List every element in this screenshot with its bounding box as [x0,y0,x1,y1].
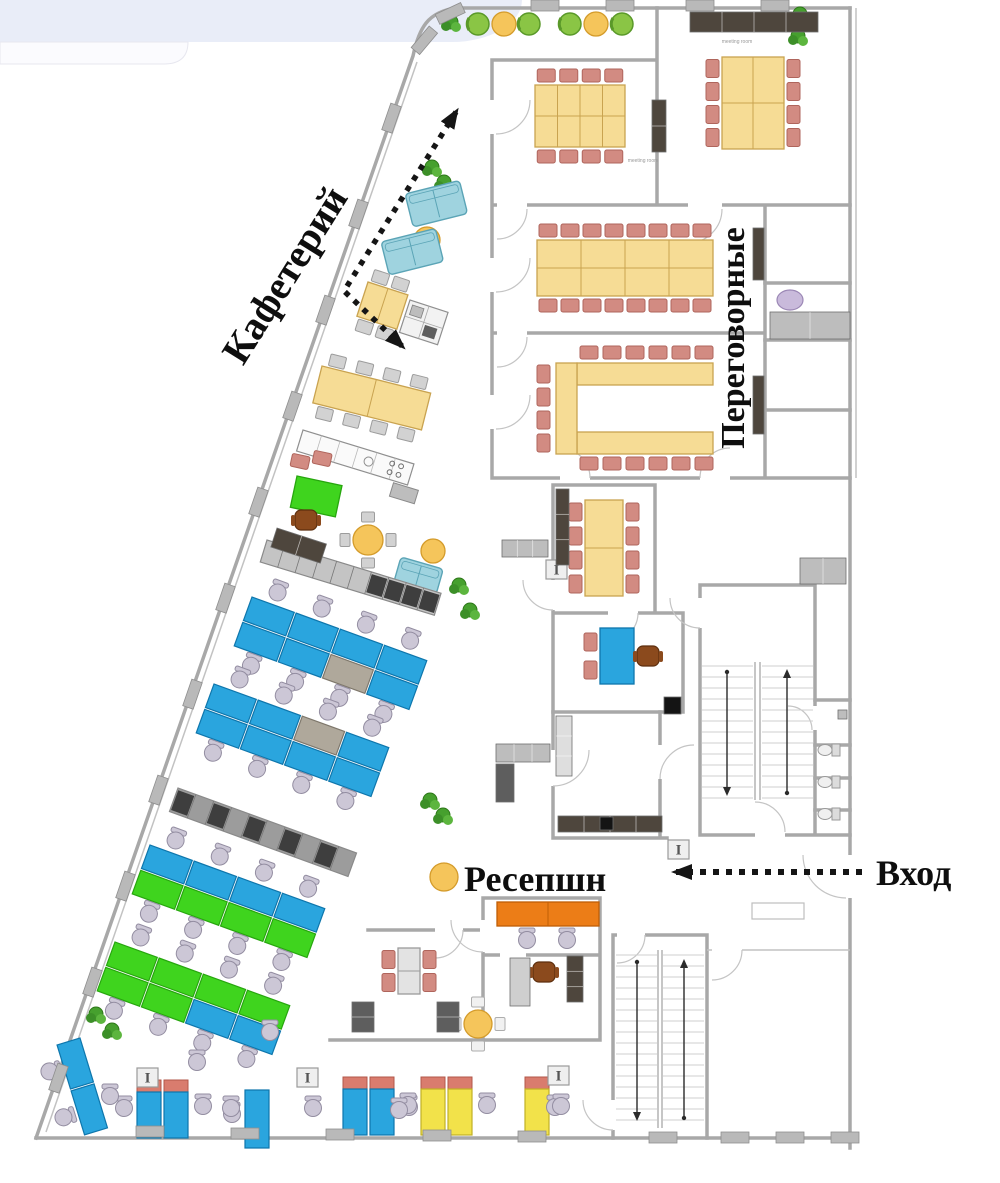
office-chair [130,923,153,948]
cabinet [496,764,514,802]
toilet-icon [818,808,840,820]
table [556,363,577,454]
cabinet [502,540,548,557]
chair [603,346,621,359]
office-chair [391,1098,408,1119]
label-reception: Ресепшн [464,859,606,899]
lounge-chair [559,13,581,35]
column-icon: I [137,1068,158,1087]
table [577,432,713,454]
chair [695,457,713,470]
office-chair [195,1094,212,1115]
chair [340,534,350,547]
wall-column [231,1128,259,1139]
meeting-table [497,902,599,926]
chair [495,1018,505,1031]
executive-chair [291,510,321,530]
office-chair [102,1084,119,1105]
chair [580,457,598,470]
chair [423,974,436,992]
chair [627,299,645,312]
chair [423,951,436,969]
chair [627,224,645,237]
executive-chair [529,962,559,982]
office-chair [355,610,378,635]
lounge-chair [467,13,489,35]
plant-icon [420,793,440,810]
chair [649,224,667,237]
room-label-meeting-1: meeting room [628,158,659,164]
cabinet [690,12,818,32]
chair [584,661,597,679]
chair [342,413,360,429]
chair [537,411,550,429]
cabinet [496,744,550,762]
chair [787,60,800,78]
meeting-table [382,948,436,994]
cabinet [800,558,846,584]
chair [605,150,623,163]
chair [569,551,582,569]
wall-column [249,487,269,517]
chair [382,974,395,992]
u-shaped-table [537,346,713,470]
cabinet [652,100,666,152]
office-chair [519,928,536,949]
chair [315,406,333,422]
cabinet [770,312,850,339]
chair [787,83,800,101]
office-chair [253,858,276,883]
office-chair [209,842,232,867]
desk-row [35,1038,108,1142]
chair [382,951,395,969]
toilet-icon [818,744,840,756]
chair [537,365,550,383]
desk [343,1089,367,1135]
round-table-set [340,512,396,568]
chair [706,129,719,147]
chair [671,224,689,237]
meeting-table [584,628,634,684]
wall-column [183,679,203,709]
office-chair [218,955,241,980]
round-table [421,539,445,563]
chair [693,224,711,237]
chair [706,60,719,78]
chair [605,299,623,312]
chair [787,106,800,124]
chair [693,299,711,312]
sofa [405,180,468,227]
wall-column [83,967,103,997]
label-meeting-rooms: Переговорные [715,227,752,449]
wall-column [776,1132,804,1143]
chair [706,83,719,101]
stairwell-main [702,662,813,800]
chair [569,575,582,593]
chair [582,69,600,82]
chair [561,224,579,237]
wall-column [283,391,303,421]
wall-column [761,0,789,11]
cabinet [556,716,572,776]
chair [383,367,401,383]
wall-column [518,1131,546,1142]
chair [569,503,582,521]
svg-text:I: I [145,1071,151,1087]
wall-column [326,1129,354,1140]
floor-plan: IIIII Кафетерий Переговорные Ресепшн Вхо… [0,0,1000,1183]
floor-plan-page: IIIII Кафетерий Переговорные Ресепшн Вхо… [0,0,1000,1183]
chair [672,457,690,470]
chair [583,224,601,237]
sofa [381,228,444,275]
wall-column [606,0,634,11]
wall-column [423,1130,451,1141]
desk [448,1089,472,1135]
column-icon: I [297,1068,318,1087]
chair [560,150,578,163]
executive-chair [633,646,663,666]
chair [539,224,557,237]
office-chair [165,826,188,851]
chair [355,361,373,377]
appliance-counter [399,300,448,345]
office-chair [267,578,290,603]
svg-text:I: I [556,1069,562,1085]
cabinet [567,956,583,1002]
wall-column [116,871,136,901]
chair [472,1041,485,1051]
lounge-chair [518,13,540,35]
office-chair [174,939,197,964]
cabinet [352,1002,374,1032]
chair [370,420,388,436]
cafe-table [309,352,434,443]
round-table [492,12,516,36]
plant-icon [449,578,469,595]
cloakroom-item [777,290,803,310]
wall-column [831,1132,859,1143]
chair [605,224,623,237]
header-card [0,42,188,64]
chair [605,69,623,82]
chair [386,534,396,547]
chair [582,150,600,163]
table [577,363,713,385]
cabinet [510,958,530,1006]
wall-column [686,0,714,11]
office-chair [305,1096,322,1117]
chair [537,69,555,82]
round-table [430,863,458,891]
office-chair [399,627,422,652]
column-icon: I [668,840,689,859]
chair [362,512,375,522]
wall-column [531,0,559,11]
chair [569,527,582,545]
plant-icon [422,160,442,177]
meeting-table [569,500,639,596]
office-chair [223,1096,240,1117]
wall-column [216,583,236,613]
column-icon: I [548,1066,569,1085]
cabinet [600,817,613,830]
chair [410,374,428,390]
office-chair [189,1050,206,1071]
chair [626,527,639,545]
chair [561,299,579,312]
desk [525,1089,549,1135]
chair [626,575,639,593]
wall-column [136,1126,164,1137]
single-desk-group [400,1077,496,1135]
chair [695,346,713,359]
office-chair [553,1094,570,1115]
toilet-icon [818,776,840,788]
plant-icon [460,603,480,620]
chair [539,299,557,312]
label-entrance: Вход [876,853,951,893]
chair [706,106,719,124]
svg-text:I: I [676,843,682,859]
wall-column [649,1132,677,1143]
chair [649,346,667,359]
table [600,628,634,684]
chair [649,299,667,312]
cabinet [753,228,764,280]
chair [472,997,485,1007]
desk [164,1092,188,1138]
chair [583,299,601,312]
office-chair [311,594,334,619]
chair [671,299,689,312]
office-chair [479,1093,496,1114]
cabinet [556,489,569,565]
stairwell-bottom [616,950,704,1128]
plant-icon [102,1023,122,1040]
cabinet [437,1002,459,1032]
plant-icon [433,808,453,825]
chair [537,434,550,452]
chair [580,346,598,359]
office-chair [297,875,320,900]
chair [560,69,578,82]
cabinet [838,710,847,719]
svg-text:I: I [305,1071,311,1087]
office-chair [53,1106,78,1128]
chair [626,457,644,470]
meeting-table [537,224,713,312]
cabinet [753,376,764,434]
chair [672,346,690,359]
desk [421,1089,445,1135]
meeting-table [535,69,625,163]
office-chair [262,1020,279,1041]
wall-column [316,295,336,325]
chair [626,346,644,359]
chair [603,457,621,470]
office-chair [559,928,576,949]
chair [626,503,639,521]
pink-chair [290,453,310,469]
chair [787,129,800,147]
furniture-layer: IIIII [35,0,859,1148]
chair [626,551,639,569]
lounge-chair [611,13,633,35]
chair [397,427,415,443]
meeting-table [706,57,800,149]
room-label-meeting-top-right: meeting room [722,39,753,45]
desk [71,1084,107,1135]
chair [537,388,550,406]
round-table [584,12,608,36]
cabinet [664,697,681,714]
chair [362,558,375,568]
chair [649,457,667,470]
chair [290,453,310,469]
chair [537,150,555,163]
office-chair [262,972,285,997]
chair [584,633,597,651]
wall-column [721,1132,749,1143]
chair [328,354,346,370]
